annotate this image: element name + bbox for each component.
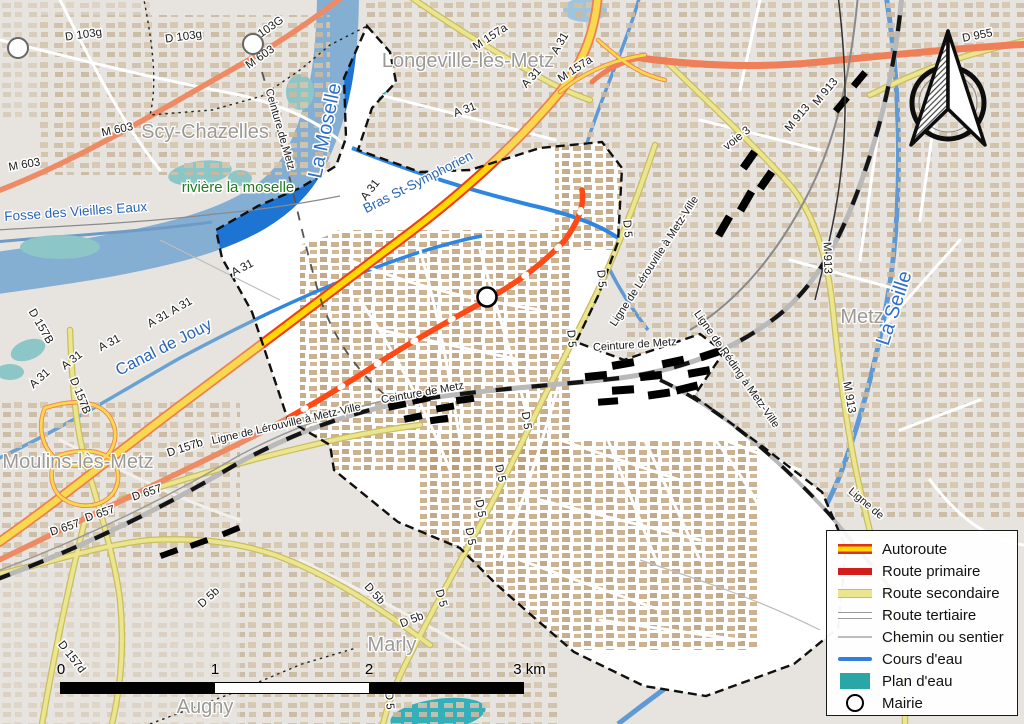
scale-segment: [215, 683, 369, 693]
scale-segment: [61, 683, 215, 693]
legend-row-cours-eau: Cours d'eau: [837, 648, 1017, 670]
cours-eau-swatch: [837, 657, 873, 661]
legend-row-chemin: Chemin ou sentier: [837, 626, 1017, 648]
autoroute-swatch: [837, 544, 873, 554]
scale-segment: [369, 683, 523, 693]
legend-row-autoroute: Autoroute: [837, 538, 1017, 560]
legend-label: Plan d'eau: [882, 673, 952, 690]
route-secondaire-swatch: [837, 589, 873, 598]
scale-tick-0: 0: [57, 661, 65, 678]
legend-label: Chemin ou sentier: [882, 629, 1004, 646]
circle-marker-scy: [243, 34, 263, 54]
map-legend: Autoroute Route primaire Route secondair…: [826, 530, 1018, 716]
legend-row-plan-eau: Plan d'eau: [837, 670, 1017, 692]
legend-row-route-primaire: Route primaire: [837, 560, 1017, 582]
legend-label: Route primaire: [882, 563, 980, 580]
legend-label: Route secondaire: [882, 585, 1000, 602]
plan-eau-swatch: [837, 673, 873, 689]
scale-bar: 0 1 2 3 km: [60, 682, 524, 694]
route-tertiaire-swatch: [837, 612, 873, 619]
legend-row-mairie: Mairie: [837, 692, 1017, 714]
circle-marker-nw: [8, 38, 28, 58]
scale-tick-2: 2: [365, 661, 373, 678]
legend-label: Route tertiaire: [882, 607, 976, 624]
mairie-swatch: [837, 694, 873, 712]
route-primaire-swatch: [837, 568, 873, 575]
legend-label: Cours d'eau: [882, 651, 962, 668]
mairie-marker: [478, 288, 497, 307]
scale-tick-1: 1: [211, 661, 219, 678]
legend-row-route-secondaire: Route secondaire: [837, 582, 1017, 604]
legend-label: Autoroute: [882, 541, 947, 558]
map-page: D 103gD 103gD 103GM 603M 603M 603M 157aA…: [0, 0, 1024, 724]
legend-row-route-tertiaire: Route tertiaire: [837, 604, 1017, 626]
scale-tick-3: 3 km: [513, 661, 546, 678]
legend-label: Mairie: [882, 695, 923, 712]
chemin-swatch: [837, 636, 873, 638]
